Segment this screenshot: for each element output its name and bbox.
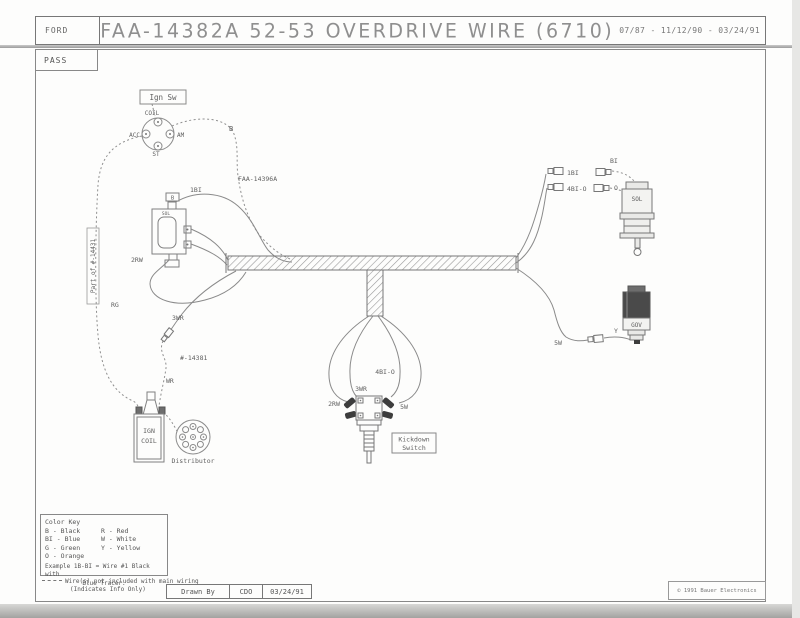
connector-o [594, 185, 609, 192]
scan-shadow-right [792, 0, 800, 618]
drawn-by-block: Drawn By CDO 03/24/91 [166, 584, 312, 599]
drawn-date: 03/24/91 [263, 584, 312, 599]
wire-label-b: B [229, 125, 233, 133]
dashed-feed-wires [96, 119, 290, 431]
distributor-label: Distributor [171, 457, 214, 465]
copyright-box: © 1991 Bauer Electronics [668, 581, 766, 600]
ignition-coil: IGN COIL [134, 392, 165, 462]
color-key: Color Key B - BlackR - Red BI - BlueW - … [40, 514, 168, 576]
wire-label-4bio-kd: 4BI-O [375, 368, 395, 376]
governor: GOV [623, 286, 650, 344]
wire-label-3wr-kd: 3WR [355, 385, 367, 393]
wire-label-5w-gov: 5W [554, 339, 562, 347]
ign-sw-label: Ign Sw [149, 93, 177, 102]
key-r-red: R - Red [101, 527, 128, 536]
color-key-title: Color Key [45, 518, 163, 527]
overdrive-relay: B SOL [152, 193, 191, 267]
color-key-example-1: Example 1B-BI = Wire #1 Black with [45, 563, 163, 580]
wire-label-bi: BI [610, 157, 618, 165]
wire-1bi-relay [176, 194, 292, 262]
key-g-green: G - Green [45, 544, 101, 553]
scan-shadow-bottom [0, 604, 800, 618]
key-o-orange: O - Orange [45, 552, 101, 561]
drawn-by-label: Drawn By [166, 584, 230, 599]
wire-label-faa14396a: FAA-14396A [238, 175, 277, 183]
kickdown-label-box: Kickdown Switch [392, 433, 436, 453]
wire-label-3wr-left: 3WR [172, 314, 184, 322]
wire-label-5w-kd: 5W [400, 403, 408, 411]
wire-label-1bi-relay: 1BI [190, 186, 202, 194]
main-harness [226, 253, 518, 316]
governor-label: GOV [631, 322, 642, 329]
scanned-wiring-diagram-page: FORD FAA-14382A 52-53 OVERDRIVE WIRE (67… [0, 0, 800, 618]
coil-label-1: IGN [143, 427, 155, 435]
overdrive-solenoid: SOL [620, 182, 654, 256]
ign-sw-terminal-acc: ACC [129, 132, 140, 139]
key-w-white: W - White [101, 535, 136, 544]
dashed-line-sample [42, 580, 62, 581]
key-bi-blue: BI - Blue [45, 535, 101, 544]
wire-label-1bi-sol: 1BI [567, 169, 579, 177]
kickdown-wires [329, 316, 421, 403]
wire-label-4bio-sol: 4BI-O [567, 185, 587, 193]
key-y-yellow: Y - Yellow [101, 544, 140, 553]
wire-label-2rw-relay: 2RW [131, 256, 143, 264]
wire-label-o: O [614, 184, 618, 192]
wire-relay-harness-1 [191, 229, 228, 260]
part-of-label: Part of #-14431 [90, 239, 97, 294]
coil-label-2: COIL [141, 437, 157, 445]
connector-4bio [548, 184, 563, 191]
wire-y-governor [604, 337, 631, 340]
connector-1bi [548, 168, 563, 175]
wire-label-y-gov: Y [614, 327, 618, 335]
wire-label-rg: RG [111, 301, 119, 309]
wire-5w-governor [516, 268, 588, 341]
ign-sw-terminal-st: ST [152, 151, 160, 158]
solenoid-label: SOL [632, 196, 643, 203]
part-of-bracket: Part of #-14431 [87, 228, 99, 304]
ign-sw-terminal-am: AM [177, 132, 185, 139]
solenoid-feed-wires [516, 174, 547, 263]
kickdown-switch [343, 396, 395, 463]
distributor: Distributor [171, 420, 214, 465]
wire-label-14381: #-14381 [180, 354, 207, 362]
connector-y [588, 335, 604, 343]
drawn-by-initials: CDO [230, 584, 263, 599]
wire-label-2rw-kd: 2RW [328, 400, 340, 408]
wire-acc-loop-dashed [96, 136, 142, 412]
connector-3wr [160, 328, 173, 342]
wire-label-wr: WR [166, 377, 174, 385]
relay-terminal-sol: SOL [162, 211, 170, 217]
wire-relay-harness-2 [191, 244, 227, 265]
ign-sw-terminal-coil: COIL [145, 110, 160, 117]
kickdown-label-1: Kickdown [398, 436, 429, 444]
key-b-black: B - Black [45, 527, 101, 536]
kickdown-label-2: Switch [402, 444, 426, 452]
connector-bi [596, 169, 611, 176]
wire-coil-to-distributor-dashed [163, 412, 177, 431]
wire-3wr-to-coil-dashed [159, 341, 166, 406]
